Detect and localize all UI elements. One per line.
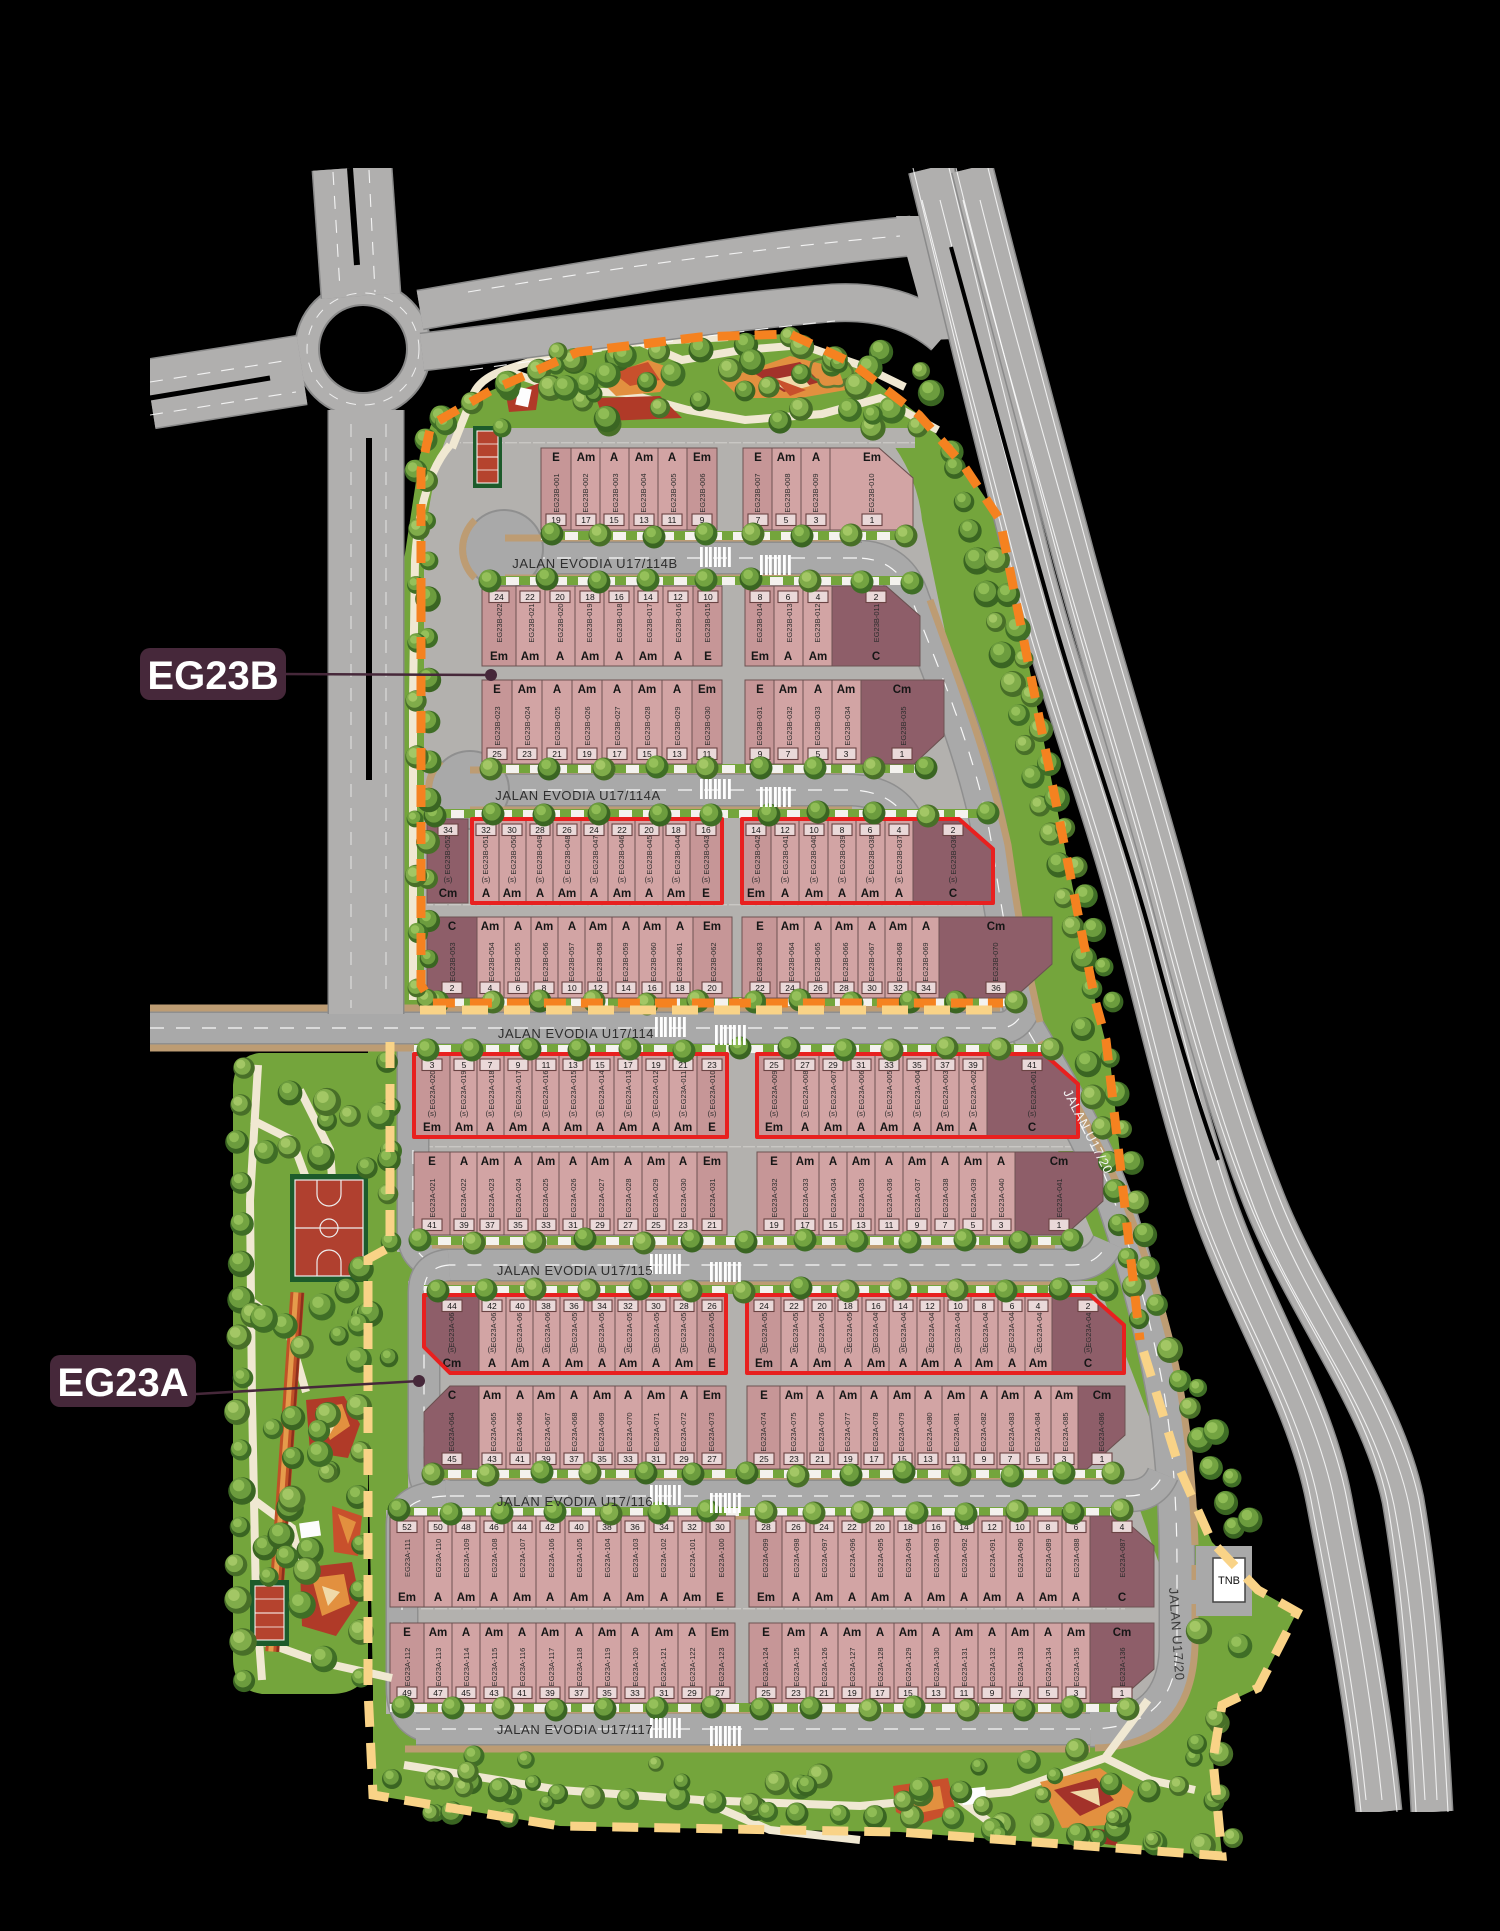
svg-text:EG23A-048: EG23A-048 (899, 1308, 908, 1347)
svg-text:(s): (s) (563, 875, 572, 884)
svg-text:JALAN EVODIA U17/115: JALAN EVODIA U17/115 (497, 1263, 653, 1278)
svg-text:(s): (s) (1084, 1345, 1093, 1354)
svg-text:EG23A-114: EG23A-114 (462, 1648, 471, 1687)
svg-text:29: 29 (828, 1060, 838, 1070)
svg-text:Am: Am (983, 1592, 1002, 1604)
svg-text:4: 4 (1036, 1301, 1041, 1311)
svg-text:(s): (s) (895, 875, 904, 884)
svg-text:EG23B-037: EG23B-037 (895, 835, 904, 874)
svg-text:EG23A-076: EG23A-076 (817, 1412, 826, 1451)
svg-text:EG23A-090: EG23A-090 (1016, 1538, 1025, 1577)
svg-text:EG23B-019: EG23B-019 (585, 603, 594, 642)
svg-text:EG23A-092: EG23A-092 (960, 1538, 969, 1577)
svg-text:11: 11 (542, 1060, 551, 1070)
svg-text:EG23B-010: EG23B-010 (867, 473, 876, 512)
svg-text:Am: Am (787, 1627, 806, 1639)
svg-text:EG23A-065: EG23A-065 (489, 1412, 498, 1451)
svg-text:A: A (857, 1122, 865, 1134)
svg-text:(s): (s) (702, 875, 711, 884)
svg-text:E: E (756, 684, 764, 696)
svg-text:Cm: Cm (1050, 1156, 1069, 1168)
svg-text:EG23B-031: EG23B-031 (755, 706, 764, 745)
svg-text:43: 43 (487, 1454, 497, 1464)
svg-text:EG23B-052: EG23B-052 (443, 835, 452, 874)
svg-text:10: 10 (1015, 1522, 1025, 1532)
svg-text:A: A (679, 1156, 687, 1168)
svg-text:EG23B-028: EG23B-028 (643, 706, 652, 745)
svg-text:41: 41 (427, 1220, 437, 1230)
svg-text:Em: Em (703, 1390, 721, 1402)
svg-text:EG23A-016: EG23A-016 (541, 1070, 550, 1109)
svg-text:8: 8 (982, 1301, 987, 1311)
svg-text:A: A (590, 888, 598, 900)
svg-text:(s): (s) (542, 1345, 551, 1354)
svg-text:21: 21 (815, 1454, 825, 1464)
svg-text:EG23A-085: EG23A-085 (1061, 1412, 1070, 1451)
svg-text:EG23A-069: EG23A-069 (597, 1412, 606, 1451)
svg-text:24: 24 (759, 1301, 769, 1311)
svg-text:33: 33 (541, 1220, 551, 1230)
svg-text:Am: Am (485, 1627, 504, 1639)
svg-text:40: 40 (574, 1522, 584, 1532)
svg-text:EG23B-059: EG23B-059 (621, 942, 630, 981)
svg-text:28: 28 (761, 1522, 771, 1532)
svg-text:E: E (756, 921, 764, 933)
svg-text:EG23A-107: EG23A-107 (518, 1538, 527, 1577)
svg-text:5: 5 (784, 515, 789, 525)
svg-text:A: A (790, 1358, 798, 1370)
svg-text:EG23A-035: EG23A-035 (857, 1178, 866, 1217)
svg-text:22: 22 (847, 1522, 857, 1532)
svg-text:(s): (s) (596, 1109, 605, 1118)
svg-text:A: A (876, 1627, 884, 1639)
svg-text:Em: Em (693, 452, 711, 464)
svg-text:Em: Em (863, 452, 881, 464)
svg-text:(s): (s) (514, 1109, 523, 1118)
svg-text:EG23A-023: EG23A-023 (487, 1178, 496, 1217)
svg-text:34: 34 (597, 1301, 607, 1311)
svg-text:EG23A-063: EG23A-063 (447, 1308, 456, 1347)
svg-text:A: A (1044, 1627, 1052, 1639)
svg-text:EG23B-069: EG23B-069 (921, 942, 930, 981)
svg-text:10: 10 (567, 983, 577, 993)
svg-text:EG23B-027: EG23B-027 (613, 706, 622, 745)
svg-text:Am: Am (899, 1627, 918, 1639)
svg-text:E: E (403, 1627, 411, 1639)
svg-text:(s): (s) (460, 1109, 469, 1118)
svg-text:E: E (716, 1592, 724, 1604)
svg-text:7: 7 (1008, 1454, 1013, 1464)
svg-text:A: A (838, 888, 846, 900)
svg-text:Am: Am (577, 452, 596, 464)
svg-text:EG23A-112: EG23A-112 (403, 1648, 412, 1687)
svg-text:Am: Am (675, 1358, 694, 1370)
svg-text:E: E (760, 1390, 768, 1402)
svg-text:A: A (603, 1592, 611, 1604)
svg-text:EG23B-061: EG23B-061 (675, 942, 684, 981)
svg-text:6: 6 (786, 592, 791, 602)
svg-text:EG23A-079: EG23A-079 (897, 1412, 906, 1451)
svg-text:26: 26 (707, 1301, 717, 1311)
svg-text:3: 3 (814, 515, 819, 525)
svg-text:EG23A-098: EG23A-098 (792, 1538, 801, 1577)
svg-text:EG23A-055: EG23A-055 (679, 1308, 688, 1347)
svg-text:EG23A-019: EG23A-019 (459, 1070, 468, 1109)
svg-text:JALAN EVODIA U17/116: JALAN EVODIA U17/116 (497, 1494, 653, 1509)
svg-text:17: 17 (612, 749, 622, 759)
svg-text:EG23A-026: EG23A-026 (569, 1178, 578, 1217)
svg-text:2: 2 (1086, 1301, 1091, 1311)
svg-text:EG23A-071: EG23A-071 (652, 1412, 661, 1451)
svg-text:(s): (s) (645, 875, 654, 884)
svg-text:EG23A-111: EG23A-111 (403, 1539, 412, 1577)
svg-text:24: 24 (589, 825, 599, 835)
svg-text:14: 14 (751, 825, 761, 835)
svg-text:E: E (754, 452, 762, 464)
svg-text:A: A (969, 1122, 977, 1134)
svg-text:(s): (s) (790, 1345, 799, 1354)
svg-text:A: A (812, 452, 820, 464)
svg-text:(s): (s) (872, 1345, 881, 1354)
svg-text:EG23B-044: EG23B-044 (673, 835, 682, 874)
svg-text:A: A (516, 1390, 524, 1402)
svg-text:EG23A-104: EG23A-104 (603, 1538, 612, 1577)
svg-text:Am: Am (455, 1122, 474, 1134)
svg-text:(s): (s) (624, 1345, 633, 1354)
svg-text:EG23A-003: EG23A-003 (941, 1070, 950, 1109)
svg-text:A: A (1034, 1390, 1042, 1402)
svg-text:EG23A-106: EG23A-106 (547, 1538, 556, 1577)
svg-text:Am: Am (591, 1156, 610, 1168)
svg-text:32: 32 (481, 825, 491, 835)
svg-text:29: 29 (687, 1688, 697, 1698)
svg-text:EG23A-061: EG23A-061 (515, 1308, 524, 1347)
svg-text:Em: Em (703, 921, 721, 933)
svg-text:E: E (708, 1122, 716, 1134)
svg-text:EG23A-109: EG23A-109 (462, 1538, 471, 1577)
svg-text:EG23A-080: EG23A-080 (925, 1412, 934, 1451)
svg-text:1: 1 (870, 515, 875, 525)
svg-text:EG23A-077: EG23A-077 (843, 1412, 852, 1451)
svg-text:18: 18 (671, 825, 681, 835)
svg-text:EG23B-014: EG23B-014 (755, 603, 764, 642)
svg-text:(s): (s) (969, 1109, 978, 1118)
svg-text:E: E (552, 452, 560, 464)
svg-text:A: A (569, 1156, 577, 1168)
svg-text:EG23B-003: EG23B-003 (611, 473, 620, 512)
svg-text:EG23A-060: EG23A-060 (543, 1308, 552, 1347)
svg-text:Am: Am (805, 888, 824, 900)
svg-text:31: 31 (659, 1688, 669, 1698)
svg-text:10: 10 (809, 825, 819, 835)
svg-text:4: 4 (897, 825, 902, 835)
svg-text:8: 8 (758, 592, 763, 602)
svg-text:22: 22 (789, 1301, 799, 1311)
svg-text:EG23A-135: EG23A-135 (1072, 1647, 1081, 1686)
svg-text:EG23A-052: EG23A-052 (791, 1308, 800, 1347)
svg-text:27: 27 (800, 1060, 810, 1070)
svg-text:A: A (820, 1627, 828, 1639)
svg-text:EG23A-067: EG23A-067 (543, 1412, 552, 1451)
svg-text:40: 40 (515, 1301, 525, 1311)
svg-text:Am: Am (835, 921, 854, 933)
svg-text:EG23A-130: EG23A-130 (932, 1647, 941, 1686)
svg-text:EG23B-060: EG23B-060 (649, 942, 658, 981)
svg-text:EG23A-121: EG23A-121 (659, 1647, 668, 1686)
svg-text:EG23B-035: EG23B-035 (899, 706, 908, 745)
svg-text:Am: Am (613, 888, 632, 900)
svg-text:Am: Am (589, 921, 608, 933)
svg-text:JALAN EVODIA U17/114A: JALAN EVODIA U17/114A (495, 788, 661, 803)
svg-text:29: 29 (679, 1454, 689, 1464)
svg-text:Am: Am (843, 1627, 862, 1639)
svg-text:EG23B-006: EG23B-006 (698, 473, 707, 512)
svg-text:EG23A-030: EG23A-030 (679, 1178, 688, 1217)
svg-text:28: 28 (839, 983, 849, 993)
svg-text:EG23A-082: EG23A-082 (979, 1412, 988, 1451)
svg-text:42: 42 (487, 1301, 497, 1311)
svg-text:A: A (829, 1156, 837, 1168)
svg-text:EG23B-012: EG23B-012 (813, 603, 822, 642)
svg-text:A: A (546, 1592, 554, 1604)
svg-text:EG23A-068: EG23A-068 (570, 1412, 579, 1451)
svg-text:Am: Am (483, 1390, 502, 1402)
svg-text:Am: Am (558, 888, 577, 900)
svg-text:EG23A-029: EG23A-029 (651, 1178, 660, 1217)
svg-text:19: 19 (769, 1220, 779, 1230)
svg-text:18: 18 (843, 1301, 853, 1311)
svg-text:37: 37 (940, 1060, 950, 1070)
svg-text:Am: Am (639, 651, 658, 663)
svg-text:EG23A-084: EG23A-084 (1033, 1412, 1042, 1451)
svg-text:EG23A-097: EG23A-097 (820, 1538, 829, 1577)
svg-text:A: A (1016, 1592, 1024, 1604)
svg-text:A: A (518, 1627, 526, 1639)
svg-text:(s): (s) (708, 1109, 717, 1118)
svg-text:EG23A-122: EG23A-122 (688, 1647, 697, 1686)
svg-text:Am: Am (541, 1627, 560, 1639)
svg-text:EG23B-047: EG23B-047 (591, 835, 600, 874)
svg-text:EG23B-050: EG23B-050 (509, 835, 518, 874)
svg-text:(s): (s) (672, 875, 681, 884)
svg-text:EG23B-067: EG23B-067 (867, 942, 876, 981)
svg-text:13: 13 (856, 1220, 866, 1230)
svg-text:EG23A-018: EG23A-018 (487, 1070, 496, 1109)
svg-text:32: 32 (893, 983, 903, 993)
svg-text:Am: Am (947, 1390, 966, 1402)
svg-text:12: 12 (925, 1301, 935, 1311)
svg-text:50: 50 (433, 1522, 443, 1532)
svg-text:Am: Am (852, 1156, 871, 1168)
svg-text:A: A (645, 888, 653, 900)
svg-text:EG23A-070: EG23A-070 (625, 1412, 634, 1451)
svg-text:EG23A-086: EG23A-086 (1097, 1412, 1106, 1451)
svg-text:Am: Am (626, 1592, 645, 1604)
svg-text:13: 13 (639, 515, 649, 525)
svg-text:9: 9 (982, 1454, 987, 1464)
svg-text:Am: Am (578, 684, 597, 696)
svg-text:20: 20 (817, 1301, 827, 1311)
svg-text:12: 12 (780, 825, 790, 835)
svg-text:A: A (460, 1156, 468, 1168)
svg-text:EG23A-132: EG23A-132 (988, 1647, 997, 1686)
svg-text:16: 16 (701, 825, 711, 835)
svg-text:EG23B-008: EG23B-008 (783, 473, 792, 512)
svg-text:12: 12 (987, 1522, 997, 1532)
svg-text:EG23B-033: EG23B-033 (813, 706, 822, 745)
svg-text:E: E (702, 888, 710, 900)
svg-text:23: 23 (522, 749, 532, 759)
svg-text:(s): (s) (752, 875, 761, 884)
svg-text:A: A (660, 1592, 668, 1604)
svg-text:2: 2 (450, 983, 455, 993)
svg-text:EG23B-055: EG23B-055 (513, 942, 522, 981)
svg-text:EG23A-118: EG23A-118 (575, 1648, 584, 1687)
svg-text:43: 43 (489, 1688, 499, 1698)
svg-text:9: 9 (516, 1060, 521, 1070)
svg-text:Am: Am (619, 1358, 638, 1370)
svg-text:EG23A-017: EG23A-017 (514, 1070, 523, 1109)
svg-text:Am: Am (565, 1358, 584, 1370)
svg-text:Cm: Cm (987, 921, 1006, 933)
svg-text:A: A (844, 1358, 852, 1370)
svg-text:EG23A-096: EG23A-096 (848, 1538, 857, 1577)
svg-text:EG23A-095: EG23A-095 (876, 1538, 885, 1577)
svg-text:(s): (s) (508, 875, 517, 884)
svg-text:17: 17 (581, 515, 591, 525)
svg-text:Em: Em (490, 651, 508, 663)
svg-text:14: 14 (898, 1301, 908, 1311)
svg-text:Am: Am (975, 1358, 994, 1370)
svg-text:EG23B-022: EG23B-022 (495, 603, 504, 642)
svg-text:17: 17 (623, 1060, 633, 1070)
svg-text:26: 26 (791, 1522, 801, 1532)
svg-text:EG23A-010: EG23A-010 (708, 1070, 717, 1109)
svg-text:Em: Em (398, 1592, 416, 1604)
svg-text:EG23B-038: EG23B-038 (867, 835, 876, 874)
svg-text:C: C (949, 888, 957, 900)
svg-text:(s): (s) (486, 1109, 495, 1118)
svg-text:EG23A-031: EG23A-031 (708, 1178, 717, 1217)
svg-text:A: A (814, 921, 822, 933)
svg-text:6: 6 (868, 825, 873, 835)
svg-text:11: 11 (885, 1220, 894, 1230)
svg-text:Am: Am (955, 1627, 974, 1639)
svg-text:E: E (770, 1156, 778, 1168)
svg-text:EG23B-032: EG23B-032 (785, 706, 794, 745)
svg-text:(s): (s) (810, 875, 819, 884)
svg-text:EG23B-068: EG23B-068 (895, 942, 904, 981)
svg-text:EG23A-057: EG23A-057 (625, 1308, 634, 1347)
svg-text:24: 24 (819, 1522, 829, 1532)
svg-text:A: A (816, 1390, 824, 1402)
svg-text:Am: Am (871, 1592, 890, 1604)
svg-text:EG23B-049: EG23B-049 (535, 835, 544, 874)
svg-text:Am: Am (647, 1390, 666, 1402)
svg-text:2: 2 (951, 825, 956, 835)
svg-text:EG23B-030: EG23B-030 (703, 706, 712, 745)
svg-text:A: A (514, 921, 522, 933)
svg-text:Am: Am (1011, 1627, 1030, 1639)
svg-text:E: E (704, 651, 712, 663)
svg-text:A: A (980, 1390, 988, 1402)
svg-text:Am: Am (513, 1592, 532, 1604)
svg-text:A: A (924, 1390, 932, 1402)
svg-text:EG23A-099: EG23A-099 (761, 1538, 770, 1577)
svg-text:3: 3 (844, 749, 849, 759)
svg-text:2: 2 (874, 592, 879, 602)
svg-text:10: 10 (703, 592, 713, 602)
svg-text:EG23B-041: EG23B-041 (781, 835, 790, 874)
svg-text:C: C (1118, 1592, 1126, 1604)
svg-text:EG23A-009: EG23A-009 (770, 1070, 779, 1109)
svg-text:Em: Em (755, 1358, 773, 1370)
svg-text:Em: Em (423, 1122, 441, 1134)
svg-text:(s): (s) (590, 875, 599, 884)
svg-text:(s): (s) (844, 1345, 853, 1354)
svg-text:(s): (s) (1008, 1345, 1017, 1354)
svg-text:A: A (568, 921, 576, 933)
svg-text:Cm: Cm (1093, 1390, 1112, 1402)
svg-text:A: A (536, 888, 544, 900)
svg-text:20: 20 (707, 983, 717, 993)
svg-text:EG23A-038: EG23A-038 (941, 1178, 950, 1217)
svg-text:EG23B-017: EG23B-017 (645, 603, 654, 642)
svg-text:33: 33 (623, 1454, 633, 1464)
svg-text:(s): (s) (542, 1109, 551, 1118)
svg-text:EG23A-044: EG23A-044 (1007, 1308, 1016, 1347)
svg-text:26: 26 (813, 983, 823, 993)
svg-text:EG23A-012: EG23A-012 (651, 1070, 660, 1109)
svg-text:A: A (652, 1122, 660, 1134)
svg-text:EG23A-108: EG23A-108 (490, 1538, 499, 1577)
svg-text:A: A (434, 1592, 442, 1604)
svg-text:Am: Am (593, 1390, 612, 1402)
svg-text:23: 23 (789, 1454, 799, 1464)
svg-text:EG23A-027: EG23A-027 (597, 1178, 606, 1217)
svg-text:EG23B-057: EG23B-057 (567, 942, 576, 981)
svg-text:(s): (s) (536, 875, 545, 884)
svg-text:EG23B-016: EG23B-016 (674, 603, 683, 642)
svg-text:EG23B-056: EG23B-056 (541, 942, 550, 981)
svg-text:EG23A-028: EG23A-028 (624, 1178, 633, 1217)
svg-text:26: 26 (562, 825, 572, 835)
svg-text:(s): (s) (444, 875, 453, 884)
svg-text:A: A (556, 651, 564, 663)
svg-text:A: A (674, 651, 682, 663)
svg-text:EG23A-066: EG23A-066 (515, 1412, 524, 1451)
svg-text:19: 19 (582, 749, 592, 759)
svg-text:A: A (895, 888, 903, 900)
svg-text:EG23A-022: EG23A-022 (459, 1178, 468, 1217)
svg-text:35: 35 (602, 1688, 612, 1698)
svg-text:20: 20 (644, 825, 654, 835)
svg-text:Am: Am (893, 1390, 912, 1402)
svg-text:EG23B-005: EG23B-005 (669, 473, 678, 512)
svg-text:Am: Am (880, 1122, 899, 1134)
svg-text:17: 17 (800, 1220, 810, 1230)
svg-text:EG23B-024: EG23B-024 (523, 706, 532, 745)
svg-text:19: 19 (847, 1688, 857, 1698)
svg-text:Am: Am (683, 1592, 702, 1604)
svg-text:EG23A-127: EG23A-127 (848, 1647, 857, 1686)
svg-text:EG23A-120: EG23A-120 (631, 1647, 640, 1686)
svg-text:EG23A-102: EG23A-102 (659, 1538, 668, 1577)
svg-text:7: 7 (786, 749, 791, 759)
svg-text:4: 4 (1120, 1522, 1125, 1532)
svg-text:A: A (688, 1627, 696, 1639)
svg-text:EG23A-007: EG23A-007 (829, 1070, 838, 1109)
